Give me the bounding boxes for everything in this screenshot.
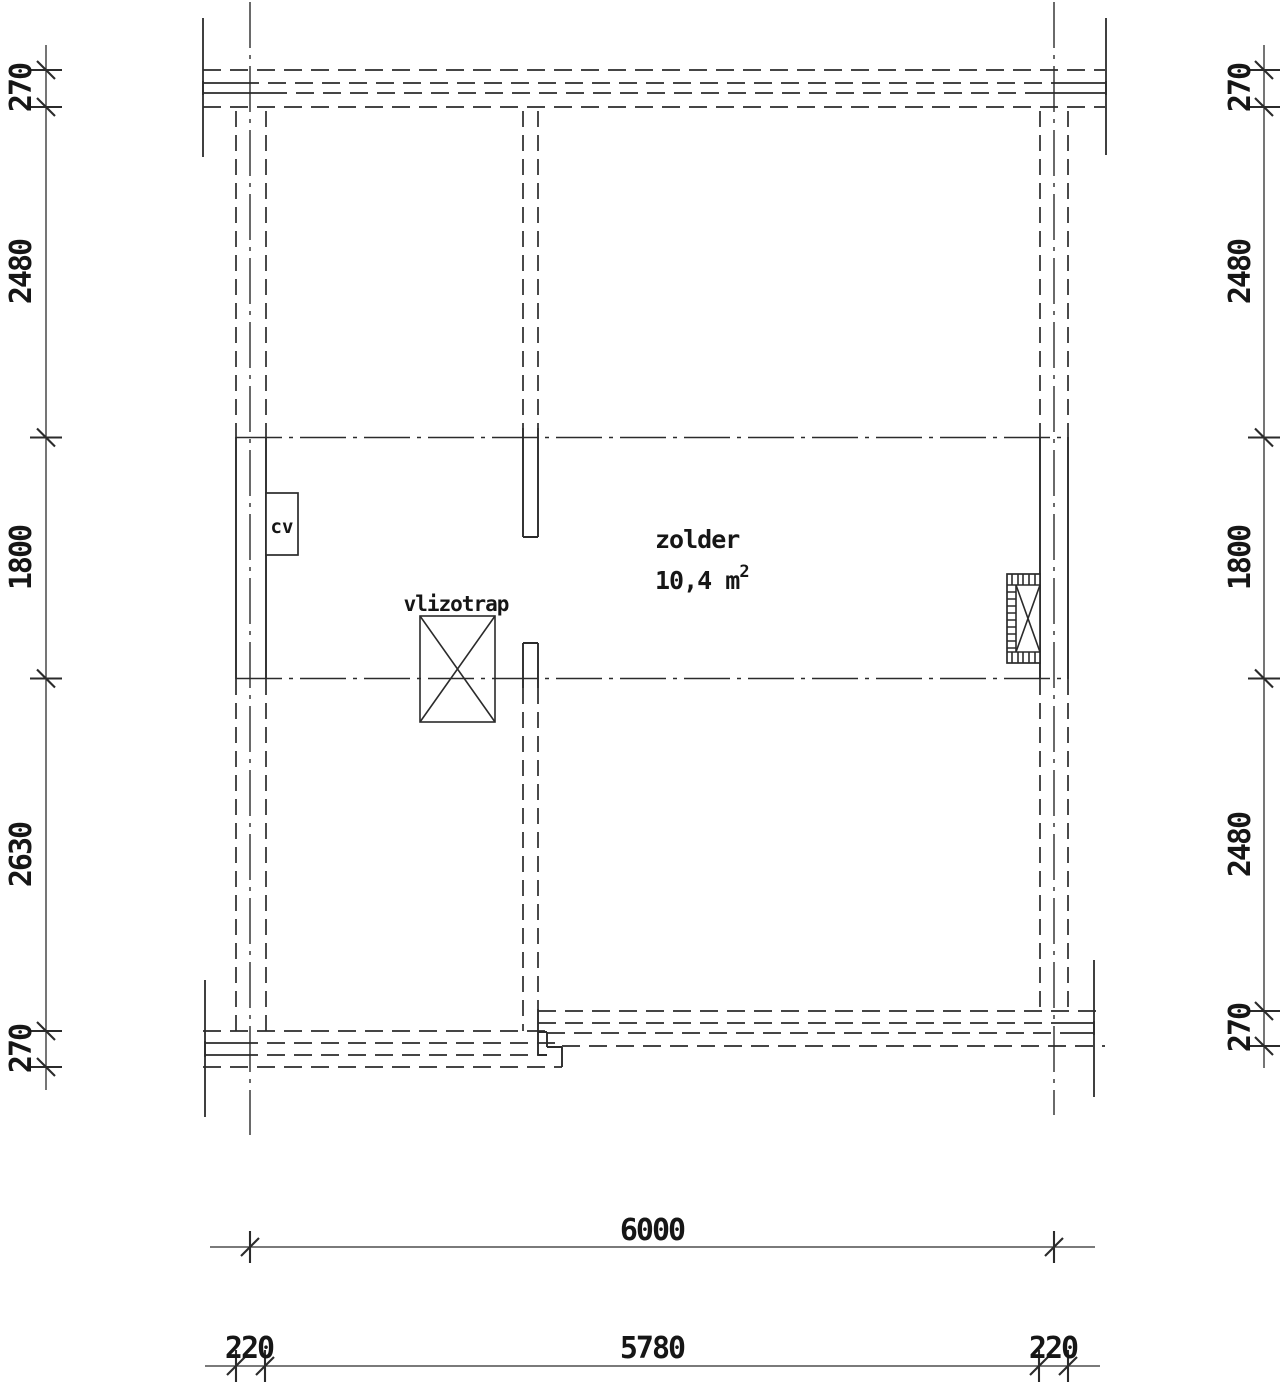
roof-edge-bottom-left-dashed bbox=[203, 1031, 562, 1067]
dim-text-left-1: 2480 bbox=[4, 239, 39, 304]
room-area-value: 10,4 m bbox=[655, 566, 740, 595]
dim-text-right-0: 270 bbox=[1223, 63, 1258, 112]
interior-wall-dashed-top bbox=[523, 111, 538, 428]
dim-text-bottom-part-2: 220 bbox=[1029, 1331, 1078, 1366]
cv-label: cv bbox=[271, 516, 294, 538]
chimney-symbol bbox=[1007, 574, 1040, 663]
roof-edge-step bbox=[538, 1009, 562, 1067]
dim-text-bottom-part-0: 220 bbox=[225, 1331, 274, 1366]
centerlines bbox=[236, 2, 1068, 1135]
room-name: zolder bbox=[655, 525, 740, 554]
dim-text-bottom-total: 6000 bbox=[620, 1213, 685, 1248]
dim-text-right-1: 2480 bbox=[1223, 239, 1258, 304]
vlizotrap-label: vlizotrap bbox=[404, 592, 509, 616]
roof-edge-top-dashed-lines bbox=[203, 70, 1105, 107]
dim-text-left-0: 270 bbox=[4, 63, 39, 112]
floor-plan-page: cv vlizotrap zolder 10,4 m2 270 2480 180… bbox=[0, 0, 1280, 1384]
interior-wall-solid-upper bbox=[523, 428, 538, 537]
roof-edge-bottom-right-dashed bbox=[538, 1011, 1105, 1046]
left-wall-dashed bbox=[236, 111, 266, 1031]
dim-text-left-4: 270 bbox=[4, 1024, 39, 1073]
chimney-outline bbox=[1007, 574, 1040, 663]
vlizotrap-cross bbox=[420, 616, 495, 722]
dim-text-right-4: 270 bbox=[1223, 1003, 1258, 1052]
roof-edge-bottom bbox=[203, 1009, 1105, 1067]
dimension-bottom-total: 6000 bbox=[210, 1213, 1095, 1263]
dim-text-left-2: 1800 bbox=[4, 525, 39, 590]
dimension-chain-right: 270 2480 1800 2480 270 bbox=[1223, 45, 1280, 1068]
room-area-exponent: 2 bbox=[739, 562, 748, 582]
floor-plan-drawing: cv vlizotrap zolder 10,4 m2 270 2480 180… bbox=[0, 0, 1280, 1384]
cv-boiler-symbol: cv bbox=[266, 493, 298, 555]
vlizotrap-hatch: vlizotrap bbox=[404, 592, 509, 722]
roof-edge-bottom-end-caps bbox=[205, 1021, 1094, 1057]
room-label: zolder 10,4 m2 bbox=[655, 525, 749, 595]
left-wall-solid bbox=[236, 437, 266, 679]
dim-text-right-2: 1800 bbox=[1223, 525, 1258, 590]
interior-wall bbox=[523, 111, 538, 1031]
dim-text-right-3: 2480 bbox=[1223, 812, 1258, 877]
interior-wall-dashed-bottom bbox=[523, 688, 538, 1031]
dim-text-bottom-part-1: 5780 bbox=[620, 1331, 685, 1366]
dim-text-left-3: 2630 bbox=[4, 822, 39, 887]
left-wall bbox=[236, 111, 266, 1031]
dimension-chain-left: 270 2480 1800 2630 270 bbox=[4, 45, 62, 1090]
dimension-bottom-parts: 220 5780 220 bbox=[205, 1331, 1100, 1382]
interior-wall-solid-lower bbox=[523, 643, 538, 688]
room-area: 10,4 m2 bbox=[655, 562, 749, 595]
roof-edge-top bbox=[203, 70, 1106, 107]
